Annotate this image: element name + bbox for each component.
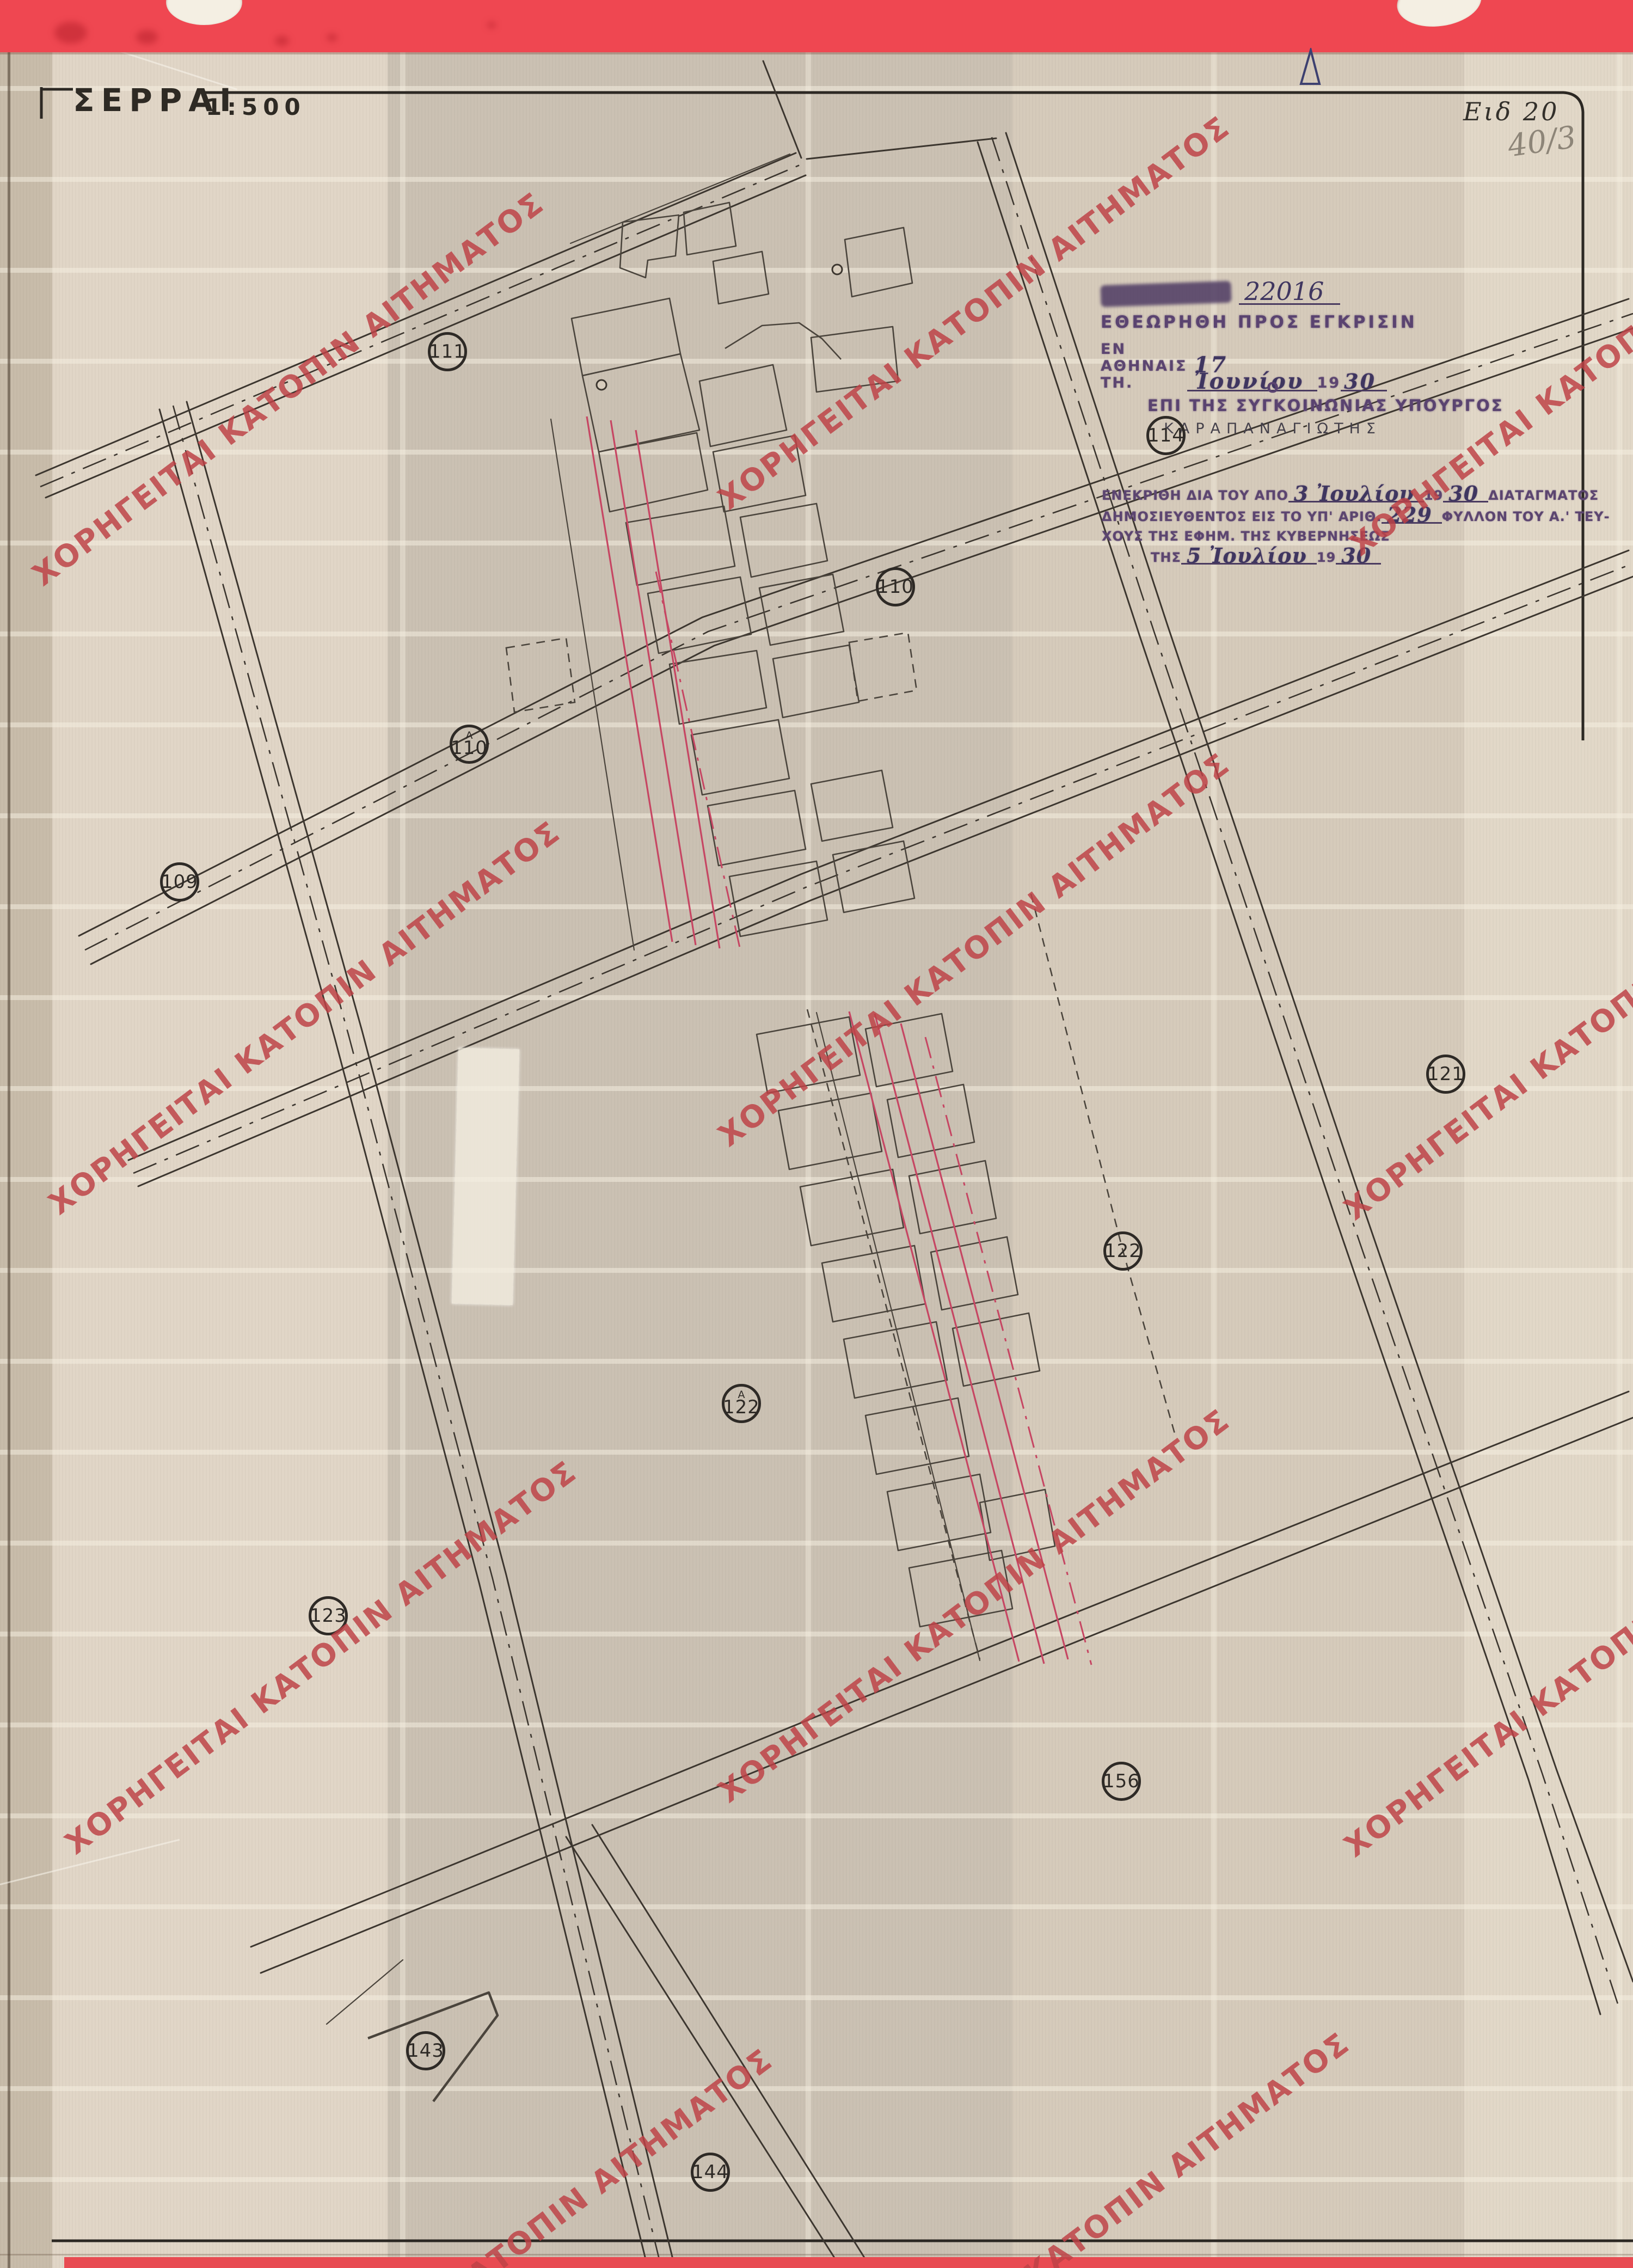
map-linework xyxy=(0,0,1633,2268)
block-number: 110 xyxy=(451,739,488,757)
block-number: 114 xyxy=(1147,427,1184,444)
registration-triangle-icon xyxy=(1298,48,1322,88)
block-marker-143: 143 xyxy=(406,2031,445,2070)
ink-smudge xyxy=(327,34,337,41)
decree-line2: ΔΗΜΟΣΙΕΥΘΕΝΤΟΣ ΕΙΣ ΤΟ ΥΠ' ΑΡΙΘ. xyxy=(1102,510,1382,524)
block-number: 121 xyxy=(1427,1065,1464,1083)
block-marker-110a: A 110 xyxy=(450,725,489,764)
approval-stamp: 22016 ΕΘΕΩΡΗΘΗ ΠΡΟΣ ΕΓΚΡΙΣΙΝ ΕΝ ΑΘΗΝΑΙΣ … xyxy=(1101,277,1384,391)
block-number: 143 xyxy=(407,2042,444,2059)
block-marker-121: 121 xyxy=(1426,1055,1465,1094)
block-number: 109 xyxy=(161,873,198,891)
ink-smudge xyxy=(54,22,87,44)
sheet-scale: 1:500 xyxy=(206,94,306,120)
decree-line2b: ΦΥΛΛΟΝ ΤΟΥ Α.' ΤΕΥ- xyxy=(1442,510,1610,524)
decree-line1b: ΔΙΑΤΑΓΜΑΤΟΣ xyxy=(1488,488,1599,502)
decree-line1: ΕΝΕΚΡΙΘΗ ΔΙΑ ΤΟΥ ΑΠΟ xyxy=(1102,488,1288,502)
block-marker-122a: A 122 xyxy=(722,1384,761,1423)
scanner-red-strip-bottom xyxy=(64,2257,1633,2268)
ink-smudge xyxy=(275,36,289,46)
bottom-edge-shadow xyxy=(0,2254,1633,2255)
block-marker-111: 111 xyxy=(428,332,467,371)
ink-blot xyxy=(1100,281,1231,307)
block-marker-144: 144 xyxy=(691,2153,730,2192)
decree-year2-print: 19 xyxy=(1317,550,1336,565)
decree-stamp: ΕΝΕΚΡΙΘΗ ΔΙΑ ΤΟΥ ΑΠΟ 3 Ἰουλίου 19 30 ΔΙΑ… xyxy=(1102,481,1363,565)
block-marker-114: 114 xyxy=(1146,416,1186,455)
minister-stamp: Ο ΕΠΙ ΤΗΣ ΣΥΓΚΟΙΝΩΝΙΑΣ ΥΠΟΥΡΓΟΣ ΚΑΡΑΠΑΝΑ… xyxy=(1147,380,1398,437)
block-number: 144 xyxy=(692,2163,729,2181)
ink-smudge xyxy=(136,30,158,44)
scanner-red-band xyxy=(0,0,1633,52)
approval-heading: ΕΘΕΩΡΗΘΗ ΠΡΟΣ ΕΓΚΡΙΣΙΝ xyxy=(1101,312,1384,332)
sheet-series-code: Ειδ 20 xyxy=(1463,97,1559,126)
protocol-number: 22016 xyxy=(1239,280,1340,305)
band-edge xyxy=(0,52,1633,54)
minister-title: ΕΠΙ ΤΗΣ ΣΥΓΚΟΙΝΩΝΙΑΣ ΥΠΟΥΡΓΟΣ xyxy=(1147,396,1398,415)
block-number: 110 xyxy=(877,578,914,596)
block-marker-156: 156 xyxy=(1102,1762,1141,1801)
minister-article: Ο xyxy=(1147,380,1398,396)
decree-line4: ΤΗΣ xyxy=(1151,550,1181,565)
block-marker-109: 109 xyxy=(160,862,199,902)
map-sheet: ΣΕΡΡΑΙ 1:500 Ειδ 20 40/3 22016 ΕΘΕΩΡΗΘΗ … xyxy=(0,0,1633,2268)
block-number: 111 xyxy=(429,343,466,360)
block-marker-110: 110 xyxy=(876,567,915,606)
ink-smudge xyxy=(487,22,496,28)
block-number: 156 xyxy=(1103,1773,1140,1790)
block-marker-122: 122 xyxy=(1103,1231,1143,1271)
block-number: 122 xyxy=(1104,1242,1141,1260)
decree-date2: 5 Ἰουλίου xyxy=(1181,549,1317,565)
block-number: 122 xyxy=(723,1399,760,1416)
tape-patch xyxy=(452,1048,519,1305)
